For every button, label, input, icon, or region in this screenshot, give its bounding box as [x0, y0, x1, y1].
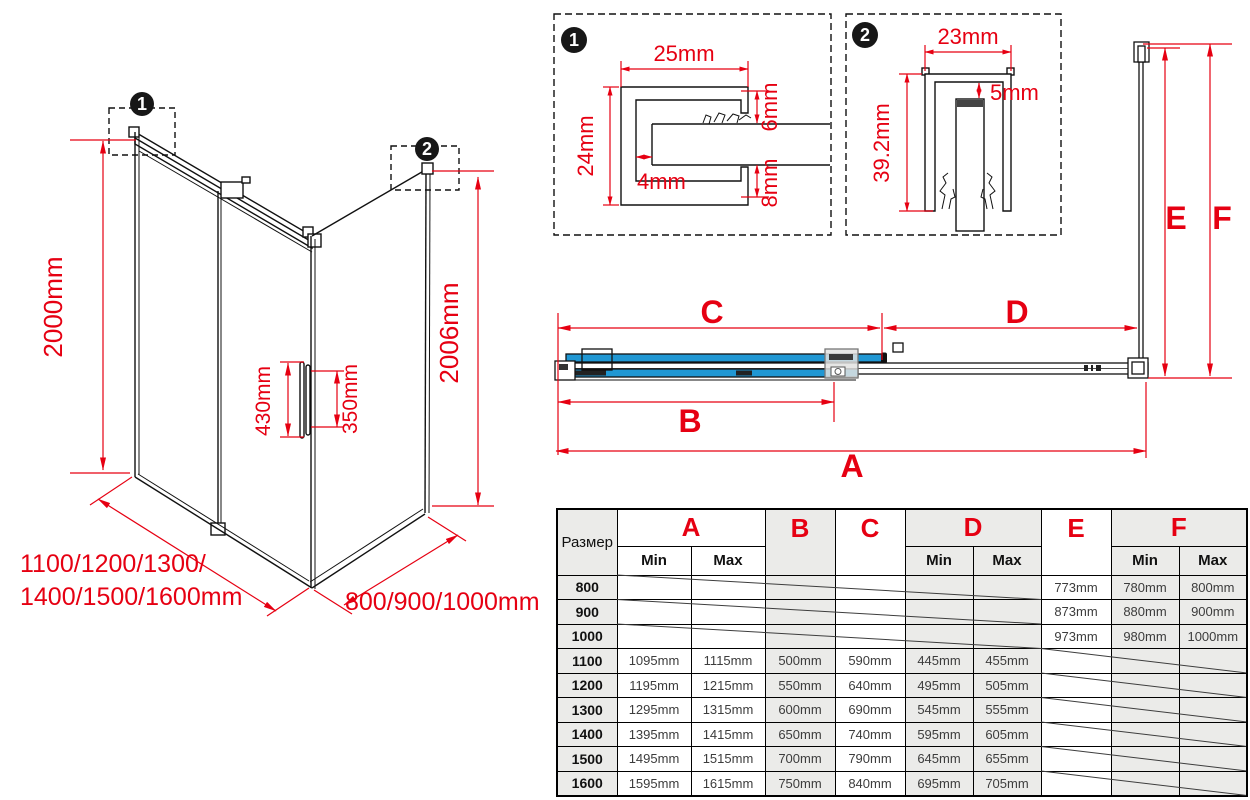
table-row: 14001395mm1415mm650mm740mm595mm605mm: [557, 722, 1247, 747]
table-cell: 880mm: [1111, 600, 1179, 625]
column-header-c: C: [835, 509, 905, 575]
table-cell: [973, 600, 1041, 625]
badge-2-number: 2: [422, 139, 432, 159]
table-cell: [1111, 649, 1179, 674]
table-cell: 980mm: [1111, 624, 1179, 649]
table-cell: 455mm: [973, 649, 1041, 674]
table-cell: [765, 575, 835, 600]
isometric-view: 1 2 2000mm 2006mm 430mm 350mm: [8, 85, 553, 630]
plan-label-f: F: [1212, 200, 1232, 236]
column-header-b: B: [765, 509, 835, 575]
table-row: 15001495mm1515mm700mm790mm645mm655mm: [557, 747, 1247, 772]
row-size-label: 1100: [557, 649, 617, 674]
column-header-f: F: [1111, 509, 1247, 546]
plan-label-c: C: [700, 294, 723, 330]
table-cell: 545mm: [905, 698, 973, 723]
table-cell: [1179, 673, 1247, 698]
size-spec-table: Размер A B C D E F Min Max Min Max Min M…: [556, 508, 1248, 797]
dim-depth: 800/900/1000mm: [345, 588, 540, 616]
table-cell: 505mm: [973, 673, 1041, 698]
table-cell: 800mm: [1179, 575, 1247, 600]
row-size-label: 1300: [557, 698, 617, 723]
row-size-label: 1400: [557, 722, 617, 747]
table-row: 1000973mm980mm1000mm: [557, 624, 1247, 649]
table-cell: [1111, 673, 1179, 698]
table-cell: 555mm: [973, 698, 1041, 723]
table-cell: 973mm: [1041, 624, 1111, 649]
f-max-header: Max: [1179, 546, 1247, 575]
table-cell: 655mm: [973, 747, 1041, 772]
dim-width-line1: 1100/1200/1300/: [20, 550, 206, 578]
table-cell: 645mm: [905, 747, 973, 772]
spec-table: Размер A B C D E F Min Max Min Max Min M…: [556, 508, 1246, 797]
table-cell: 690mm: [835, 698, 905, 723]
column-header-a: A: [617, 509, 765, 546]
table-cell: 750mm: [765, 771, 835, 796]
enclosure-structure: [129, 127, 433, 589]
table-cell: 1295mm: [617, 698, 691, 723]
table-row: 900873mm880mm900mm: [557, 600, 1247, 625]
row-size-label: 1500: [557, 747, 617, 772]
a-min-header: Min: [617, 546, 691, 575]
table-cell: [1179, 747, 1247, 772]
table-cell: [835, 624, 905, 649]
table-cell: [617, 624, 691, 649]
table-cell: 590mm: [835, 649, 905, 674]
table-cell: 605mm: [973, 722, 1041, 747]
table-cell: 1495mm: [617, 747, 691, 772]
table-cell: [1179, 649, 1247, 674]
table-cell: 900mm: [1179, 600, 1247, 625]
f-min-header: Min: [1111, 546, 1179, 575]
table-cell: 650mm: [765, 722, 835, 747]
door-handle: [300, 362, 304, 438]
plan-label-a: A: [840, 448, 863, 484]
d-max-header: Max: [973, 546, 1041, 575]
table-cell: [1041, 722, 1111, 747]
table-cell: 695mm: [905, 771, 973, 796]
table-cell: [1179, 722, 1247, 747]
table-cell: [1041, 698, 1111, 723]
table-cell: 840mm: [835, 771, 905, 796]
dim-handle-outer: 430mm: [252, 366, 275, 436]
dim-height-right: 2006mm: [434, 282, 464, 383]
table-cell: [1111, 698, 1179, 723]
dim-height-left: 2000mm: [38, 256, 68, 357]
column-header-d: D: [905, 509, 1041, 546]
table-cell: 1615mm: [691, 771, 765, 796]
plan-structure: [555, 42, 1149, 380]
table-cell: 595mm: [905, 722, 973, 747]
row-size-label: 800: [557, 575, 617, 600]
table-cell: [691, 600, 765, 625]
table-cell: 1395mm: [617, 722, 691, 747]
table-cell: [1111, 747, 1179, 772]
table-cell: 1095mm: [617, 649, 691, 674]
table-cell: 1215mm: [691, 673, 765, 698]
plan-label-b: B: [678, 403, 701, 439]
table-cell: [1111, 771, 1179, 796]
table-cell: 1595mm: [617, 771, 691, 796]
d-min-header: Min: [905, 546, 973, 575]
table-cell: [691, 575, 765, 600]
table-cell: 640mm: [835, 673, 905, 698]
table-row: 12001195mm1215mm550mm640mm495mm505mm: [557, 673, 1247, 698]
table-row: 11001095mm1115mm500mm590mm445mm455mm: [557, 649, 1247, 674]
table-cell: 773mm: [1041, 575, 1111, 600]
technical-drawing-sheet: 1 2 2000mm 2006mm 430mm 350mm: [0, 0, 1250, 800]
table-cell: [905, 624, 973, 649]
table-cell: 1515mm: [691, 747, 765, 772]
table-cell: 445mm: [905, 649, 973, 674]
table-cell: 705mm: [973, 771, 1041, 796]
dim-width-line2: 1400/1500/1600mm: [20, 583, 242, 611]
table-cell: 600mm: [765, 698, 835, 723]
table-cell: [1179, 698, 1247, 723]
iso-dimensions: [70, 140, 494, 616]
table-cell: [617, 575, 691, 600]
a-max-header: Max: [691, 546, 765, 575]
table-cell: [1041, 673, 1111, 698]
table-cell: [1041, 649, 1111, 674]
table-cell: 500mm: [765, 649, 835, 674]
table-cell: 1115mm: [691, 649, 765, 674]
row-size-label: 1200: [557, 673, 617, 698]
table-cell: 1415mm: [691, 722, 765, 747]
plan-label-e: E: [1165, 200, 1186, 236]
table-cell: [765, 600, 835, 625]
row-size-label: 900: [557, 600, 617, 625]
column-header-e: E: [1041, 509, 1111, 575]
table-row: 16001595mm1615mm750mm840mm695mm705mm: [557, 771, 1247, 796]
table-cell: 1000mm: [1179, 624, 1247, 649]
dim-handle-inner: 350mm: [339, 364, 362, 434]
table-cell: 1315mm: [691, 698, 765, 723]
row-size-label: 1600: [557, 771, 617, 796]
plan-dimensions: [556, 44, 1232, 458]
table-cell: [973, 624, 1041, 649]
plan-view: C D B A E F: [550, 30, 1250, 485]
table-cell: 495mm: [905, 673, 973, 698]
size-column-header: Размер: [557, 509, 617, 575]
table-cell: [1041, 747, 1111, 772]
table-cell: [835, 600, 905, 625]
table-cell: 873mm: [1041, 600, 1111, 625]
table-cell: [1179, 771, 1247, 796]
table-cell: [1041, 771, 1111, 796]
table-cell: 550mm: [765, 673, 835, 698]
table-cell: [765, 624, 835, 649]
table-cell: [905, 600, 973, 625]
table-row: 800773mm780mm800mm: [557, 575, 1247, 600]
table-cell: 740mm: [835, 722, 905, 747]
table-cell: [691, 624, 765, 649]
table-cell: 700mm: [765, 747, 835, 772]
table-cell: [973, 575, 1041, 600]
table-cell: 790mm: [835, 747, 905, 772]
table-cell: [1111, 722, 1179, 747]
badge-1-number: 1: [137, 94, 147, 114]
table-cell: 1195mm: [617, 673, 691, 698]
table-cell: [905, 575, 973, 600]
plan-label-d: D: [1005, 294, 1028, 330]
row-size-label: 1000: [557, 624, 617, 649]
table-row: 13001295mm1315mm600mm690mm545mm555mm: [557, 698, 1247, 723]
table-cell: [835, 575, 905, 600]
table-cell: [617, 600, 691, 625]
table-cell: 780mm: [1111, 575, 1179, 600]
